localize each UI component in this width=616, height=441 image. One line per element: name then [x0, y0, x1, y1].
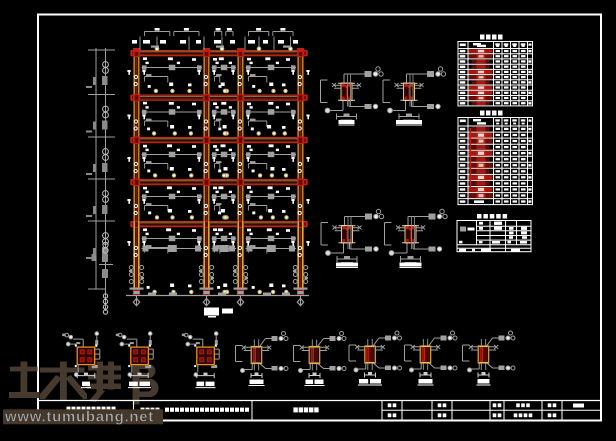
svg-text:www.tumubang.net: www.tumubang.net [4, 409, 154, 426]
